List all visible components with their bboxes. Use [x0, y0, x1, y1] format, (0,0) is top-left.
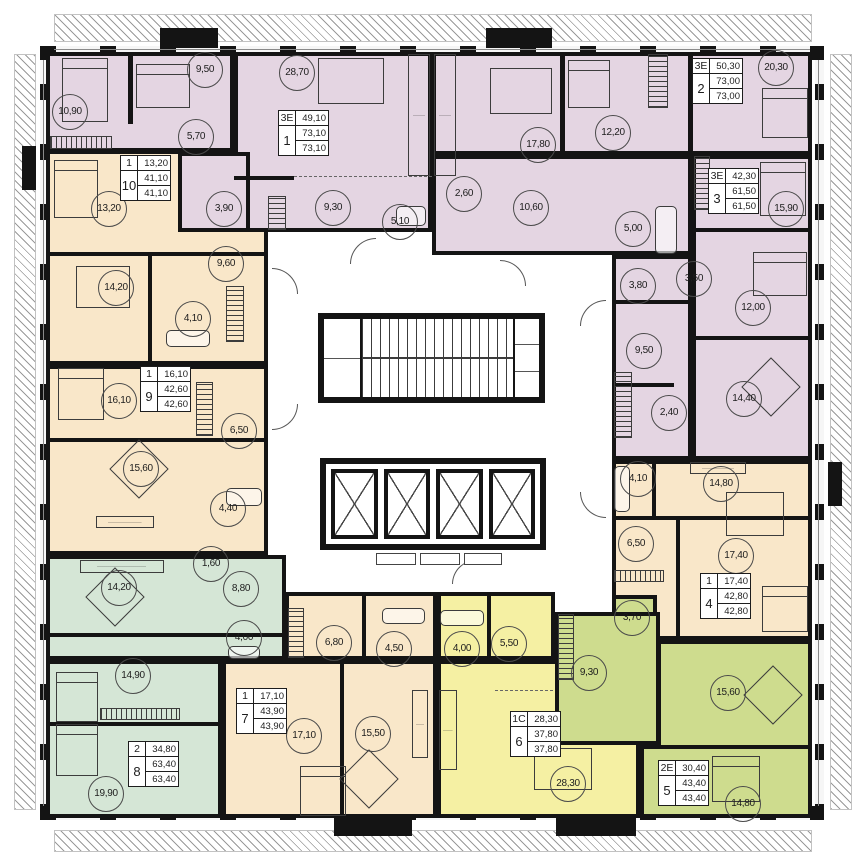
shaft-room	[513, 319, 539, 397]
apartment-9-info-box: 1916,1042,6042,60	[140, 366, 191, 412]
apartment-type-label: 1	[141, 367, 158, 382]
room-area-label: 3,70	[614, 600, 650, 636]
room-area-label: 8,80	[223, 571, 259, 607]
room-area-label: 14,80	[703, 466, 739, 502]
corner-pier	[810, 806, 824, 820]
room-area-label: 14,90	[115, 658, 151, 694]
apartment-number-label: 10	[121, 171, 138, 200]
dining-table-icon	[318, 58, 384, 104]
bed-icon	[56, 724, 98, 776]
bathtub-icon	[382, 608, 425, 624]
wall-partition	[692, 336, 812, 340]
wall-partition	[676, 520, 680, 636]
door-arc-icon	[350, 238, 376, 264]
service-box	[420, 553, 460, 565]
room-area-label: 9,50	[626, 333, 662, 369]
apartment-area-value: 43,40	[676, 791, 708, 805]
room-area-label: 9,30	[315, 190, 351, 226]
staircase	[318, 313, 545, 403]
wall-partition	[128, 52, 133, 124]
floor-plan: 10,909,505,7028,709,305,103,903Е149,1073…	[0, 0, 864, 864]
facade-pier	[160, 28, 218, 48]
apartment-area-value: 42,60	[158, 397, 190, 411]
room-area-label: 5,00	[615, 211, 651, 247]
room-area-label: 14,40	[726, 381, 762, 417]
wall-partition	[148, 256, 152, 364]
wall-partition	[612, 300, 692, 304]
room-area-label: 28,30	[550, 766, 586, 802]
room-area-label: 4,10	[175, 301, 211, 337]
bed-icon	[753, 252, 807, 296]
room-area-label: 17,80	[520, 127, 556, 163]
apartment-4-info-box: 1417,4042,8042,80	[700, 573, 751, 619]
apartment-area-value: 61,50	[726, 184, 758, 199]
apartment-number-label: 3	[709, 184, 726, 213]
bathtub-icon	[655, 206, 677, 254]
facade-hatch-right	[830, 54, 852, 810]
door-arc-icon	[580, 492, 606, 518]
room-area-label: 15,60	[123, 451, 159, 487]
apartment-type-label: 1	[701, 574, 718, 589]
apartment-area-value: 50,30	[710, 59, 742, 74]
room-area-label: 14,20	[101, 570, 137, 606]
door-arc-icon	[580, 300, 606, 326]
apartment-number-label: 5	[659, 776, 676, 805]
wardrobe-icon	[614, 372, 632, 438]
room-area-label: 1,60	[193, 546, 229, 582]
apartment-area-value: 42,60	[158, 382, 190, 397]
bed-icon	[762, 88, 808, 138]
apartment-3-info-box: 3Е342,3061,5061,50	[708, 168, 759, 214]
apartment-area-value: 63,40	[146, 757, 178, 772]
bed-icon	[568, 60, 610, 108]
wardrobe-icon	[100, 708, 180, 720]
apartment-area-value: 37,80	[528, 727, 560, 742]
apartment-7-region[interactable]	[285, 592, 437, 660]
apartment-type-label: 1	[121, 156, 138, 171]
kitchen-counter-icon	[408, 54, 430, 176]
room-area-label: 5,50	[491, 626, 527, 662]
shaft-room	[324, 319, 362, 397]
bed-icon	[300, 766, 346, 816]
elevator-bank	[320, 458, 546, 550]
wardrobe-icon	[648, 54, 668, 108]
apartment-area-value: 17,10	[254, 689, 286, 704]
apartment-number-label: 8	[129, 757, 146, 786]
facade-pier	[486, 28, 552, 48]
wardrobe-icon	[268, 196, 286, 230]
apartment-area-value: 73,00	[710, 74, 742, 89]
service-box	[376, 553, 416, 565]
room-area-label: 2,40	[651, 395, 687, 431]
apartment-type-label: 1С	[511, 712, 528, 727]
apartment-area-value: 37,80	[528, 742, 560, 756]
wardrobe-icon	[196, 382, 213, 436]
apartment-5-info-box: 2Е530,4043,4043,40	[658, 760, 709, 806]
room-area-label: 19,90	[88, 776, 124, 812]
room-area-label: 12,00	[735, 290, 771, 326]
room-area-label: 28,70	[279, 55, 315, 91]
stair-flight-up	[362, 319, 513, 359]
kitchen-counter-icon	[439, 690, 457, 770]
apartment-number-label: 2	[693, 74, 710, 103]
bed-icon	[56, 672, 98, 722]
room-area-label: 4,00	[226, 620, 262, 656]
room-area-label: 10,90	[52, 94, 88, 130]
apartment-number-label: 9	[141, 382, 158, 411]
exterior-wall-right	[815, 46, 824, 820]
apartment-area-value: 42,80	[718, 589, 750, 604]
wall-partition	[487, 592, 491, 662]
apartment-area-value: 63,40	[146, 772, 178, 786]
room-area-label: 9,50	[187, 52, 223, 88]
room-area-label: 2,60	[446, 176, 482, 212]
wall-partition	[560, 52, 565, 152]
apartment-area-value: 16,10	[158, 367, 190, 382]
room-area-label: 16,10	[101, 383, 137, 419]
apartment-10-info-box: 11013,2041,1041,10	[120, 155, 171, 201]
apartment-2-info-box: 3Е250,3073,0073,00	[692, 58, 743, 104]
room-area-label: 4,40	[210, 491, 246, 527]
apartment-area-value: 49,10	[296, 111, 328, 126]
apartment-area-value: 34,80	[146, 742, 178, 757]
room-area-label: 9,60	[208, 246, 244, 282]
facade-pier	[828, 462, 842, 506]
apartment-type-label: 1	[237, 689, 254, 704]
apartment-area-value: 42,80	[718, 604, 750, 618]
room-area-label: 4,10	[620, 461, 656, 497]
apartment-type-label: 3Е	[279, 111, 296, 126]
room-area-label: 20,30	[758, 50, 794, 86]
door-arc-icon	[500, 260, 526, 286]
room-area-label: 15,60	[710, 675, 746, 711]
facade-pier	[556, 816, 636, 836]
kitchen-counter-icon	[434, 54, 456, 176]
room-area-label: 6,50	[221, 413, 257, 449]
apartment-area-value: 13,20	[138, 156, 170, 171]
door-arc-icon	[272, 404, 298, 430]
room-area-label: 15,50	[355, 716, 391, 752]
wall-partition	[234, 176, 294, 180]
apartment-6-info-box: 1С628,3037,8037,80	[510, 711, 561, 757]
wardrobe-icon	[226, 286, 244, 342]
wardrobe-icon	[288, 608, 304, 658]
apartment-7-info-box: 1717,1043,9043,90	[236, 688, 287, 734]
room-area-label: 6,80	[316, 625, 352, 661]
apartment-type-label: 3Е	[709, 169, 726, 184]
elevator-shaft-icon	[384, 469, 431, 539]
room-area-label: 3,90	[206, 191, 242, 227]
room-area-label: 9,30	[571, 655, 607, 691]
elevator-shaft-icon	[331, 469, 378, 539]
room-area-label: 17,10	[286, 718, 322, 754]
room-area-label: 5,70	[178, 119, 214, 155]
apartment-area-value: 30,40	[676, 761, 708, 776]
apartment-8-info-box: 2834,8063,4063,40	[128, 741, 179, 787]
apartment-area-value: 28,30	[528, 712, 560, 727]
apartment-area-value: 73,10	[296, 141, 328, 155]
wardrobe-icon	[614, 570, 664, 582]
apartment-area-value: 41,10	[138, 171, 170, 186]
room-area-label: 4,00	[444, 631, 480, 667]
bed-icon	[762, 586, 808, 632]
room-area-label: 17,40	[718, 538, 754, 574]
room-area-label: 3,80	[620, 268, 656, 304]
dining-table-icon	[726, 492, 784, 536]
apartment-number-label: 7	[237, 704, 254, 733]
apartment-type-label: 2	[129, 742, 146, 757]
wall-partition	[692, 228, 812, 232]
apartment-type-label: 3Е	[693, 59, 710, 74]
apartment-area-value: 73,00	[710, 89, 742, 103]
service-box	[464, 553, 502, 565]
apartment-number-label: 1	[279, 126, 296, 155]
wardrobe-icon	[50, 136, 112, 149]
bathtub-icon	[440, 610, 484, 626]
room-area-label: 12,20	[595, 115, 631, 151]
room-area-label: 10,60	[513, 190, 549, 226]
room-area-label: 14,20	[98, 270, 134, 306]
elevator-shaft-icon	[436, 469, 483, 539]
zone-dashed-line	[294, 176, 432, 177]
kitchen-counter-icon	[412, 690, 428, 758]
kitchen-counter-icon	[96, 516, 154, 528]
room-area-label: 3,50	[676, 261, 712, 297]
zone-dashed-line	[495, 690, 553, 691]
door-arc-icon	[272, 268, 298, 294]
wall-partition	[362, 592, 366, 662]
apartment-number-label: 4	[701, 589, 718, 618]
bed-icon	[136, 64, 190, 108]
apartment-area-value: 43,40	[676, 776, 708, 791]
room-area-label: 6,50	[618, 526, 654, 562]
bed-icon	[58, 368, 104, 420]
facade-pier	[22, 146, 36, 190]
stair-flights	[362, 319, 513, 397]
room-area-label: 4,50	[376, 631, 412, 667]
facade-pier	[334, 816, 412, 836]
apartment-area-value: 42,30	[726, 169, 758, 184]
stair-flight-down	[362, 359, 513, 397]
room-area-label: 14,80	[725, 786, 761, 822]
apartment-area-value: 41,10	[138, 186, 170, 200]
apartment-area-value: 73,10	[296, 126, 328, 141]
apartment-area-value: 61,50	[726, 199, 758, 213]
apartment-type-label: 2Е	[659, 761, 676, 776]
apartment-area-value: 17,40	[718, 574, 750, 589]
facade-hatch-bottom	[54, 830, 812, 852]
apartment-area-value: 43,90	[254, 719, 286, 733]
dining-table-icon	[490, 68, 552, 114]
room-area-label: 5,10	[382, 204, 418, 240]
apartment-number-label: 6	[511, 727, 528, 756]
apartment-1-info-box: 3Е149,1073,1073,10	[278, 110, 329, 156]
apartment-area-value: 43,90	[254, 704, 286, 719]
room-area-label: 15,90	[768, 191, 804, 227]
corner-pier	[810, 46, 824, 60]
elevator-shaft-icon	[489, 469, 536, 539]
